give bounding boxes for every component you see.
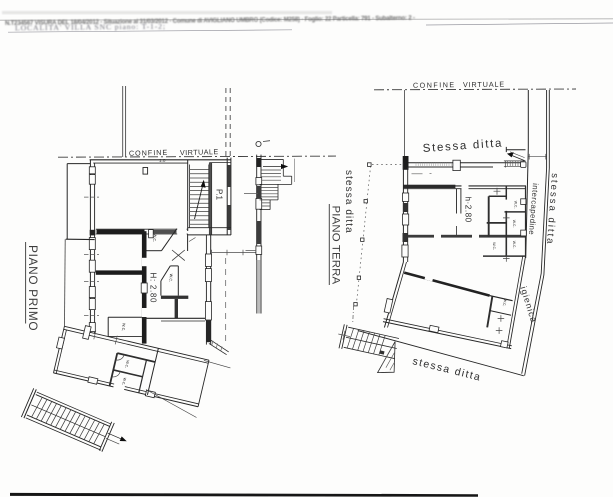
svg-text:PIANO TERRA: PIANO TERRA [330,206,342,285]
svg-text:w.c.: w.c. [512,241,517,249]
svg-text:w.c.: w.c. [513,201,518,209]
svg-text:PIANO PRIMO: PIANO PRIMO [26,245,40,331]
svg-text:w.c.: w.c. [167,273,174,282]
svg-text:1.0: 1.0 [159,158,166,163]
svg-text:VIRTUALE: VIRTUALE [180,147,219,157]
svg-text:P.1: P.1 [215,189,224,201]
svg-text:w.c.: w.c. [492,242,497,250]
svg-text:h·2.80: h·2.80 [463,197,472,223]
svg-text:stessa ditta: stessa ditta [343,170,354,234]
svg-text:w.c.: w.c. [512,220,517,228]
svg-text:w.c.: w.c. [151,233,158,242]
svg-text:CONFINE: CONFINE [413,80,455,90]
svg-text:H: 2.80: H: 2.80 [149,273,158,304]
svg-text:CONFINE: CONFINE [129,148,168,158]
svg-text:VIRTUALE: VIRTUALE [463,80,505,90]
svg-text:w.c.: w.c. [120,323,127,332]
